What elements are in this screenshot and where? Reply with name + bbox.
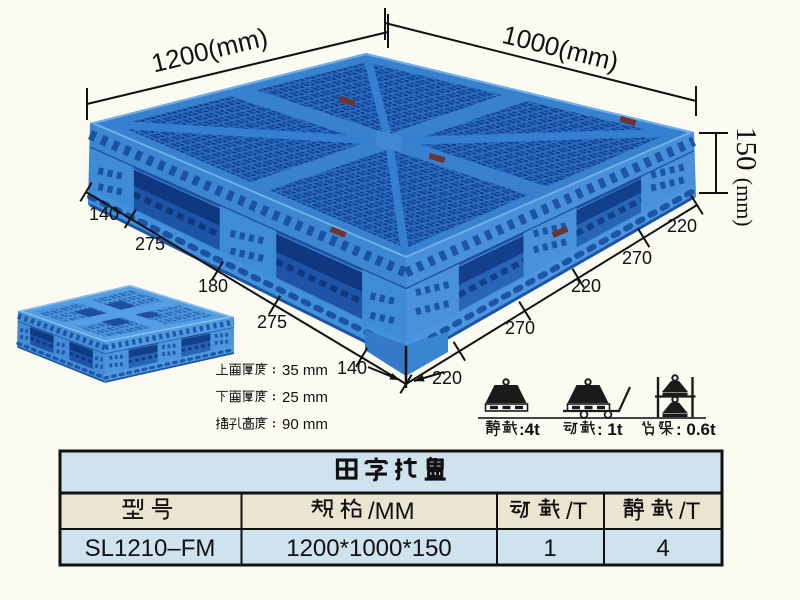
svg-text:: 0.6t: : 0.6t — [676, 420, 716, 439]
svg-text:/T: /T — [566, 498, 588, 525]
svg-text:140: 140 — [89, 204, 119, 224]
svg-text::4t: :4t — [519, 420, 540, 439]
svg-text:1: 1 — [543, 535, 556, 562]
svg-text:/T: /T — [679, 498, 701, 525]
svg-text:: 1t: : 1t — [597, 420, 623, 439]
svg-text:270: 270 — [505, 318, 535, 338]
svg-text:SL1210–FM: SL1210–FM — [85, 535, 216, 562]
svg-text:220: 220 — [667, 216, 697, 236]
svg-text:1200*1000*150: 1200*1000*150 — [286, 535, 452, 562]
svg-text:275: 275 — [135, 234, 165, 254]
svg-text:35 mm: 35 mm — [282, 362, 328, 379]
svg-text:/MM: /MM — [368, 498, 415, 525]
svg-text:180: 180 — [198, 276, 228, 296]
svg-text:150 (mm): 150 (mm) — [730, 127, 762, 227]
svg-text:90 mm: 90 mm — [282, 416, 328, 433]
svg-text:4: 4 — [656, 535, 669, 562]
svg-text:220: 220 — [432, 368, 462, 388]
svg-text:270: 270 — [622, 248, 652, 268]
svg-text:275: 275 — [257, 312, 287, 332]
svg-text:140: 140 — [337, 358, 367, 378]
svg-text:220: 220 — [571, 276, 601, 296]
svg-text:25 mm: 25 mm — [282, 389, 328, 406]
